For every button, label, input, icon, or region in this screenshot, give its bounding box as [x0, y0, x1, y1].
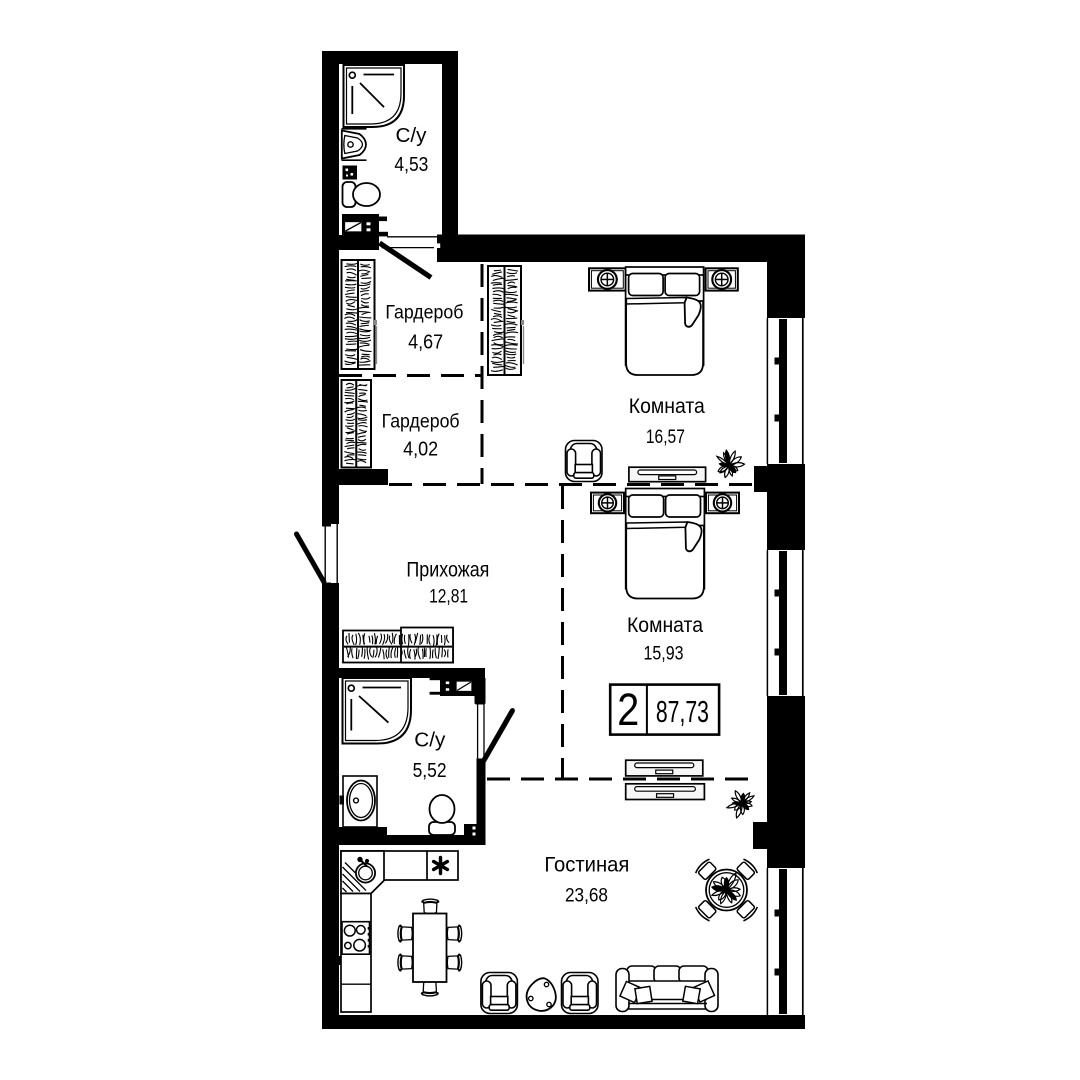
svg-text:Комната: Комната — [629, 394, 705, 418]
svg-text:12,81: 12,81 — [429, 585, 468, 607]
svg-text:Комната: Комната — [627, 613, 703, 637]
svg-text:4,53: 4,53 — [394, 154, 428, 176]
svg-text:Гостиная: Гостиная — [544, 853, 629, 877]
svg-text:2: 2 — [617, 684, 639, 735]
svg-text:4,67: 4,67 — [408, 331, 443, 353]
svg-text:Прихожая: Прихожая — [406, 558, 489, 582]
svg-text:Гардероб: Гардероб — [382, 410, 460, 432]
svg-text:16,57: 16,57 — [646, 426, 685, 448]
svg-text:Гардероб: Гардероб — [385, 301, 463, 323]
svg-text:87,73: 87,73 — [656, 694, 709, 729]
svg-text:23,68: 23,68 — [565, 884, 608, 906]
svg-text:С/у: С/у — [396, 125, 427, 147]
svg-text:15,93: 15,93 — [644, 643, 684, 665]
svg-text:С/у: С/у — [414, 729, 445, 751]
svg-text:4,02: 4,02 — [403, 438, 438, 460]
svg-text:5,52: 5,52 — [413, 760, 447, 782]
